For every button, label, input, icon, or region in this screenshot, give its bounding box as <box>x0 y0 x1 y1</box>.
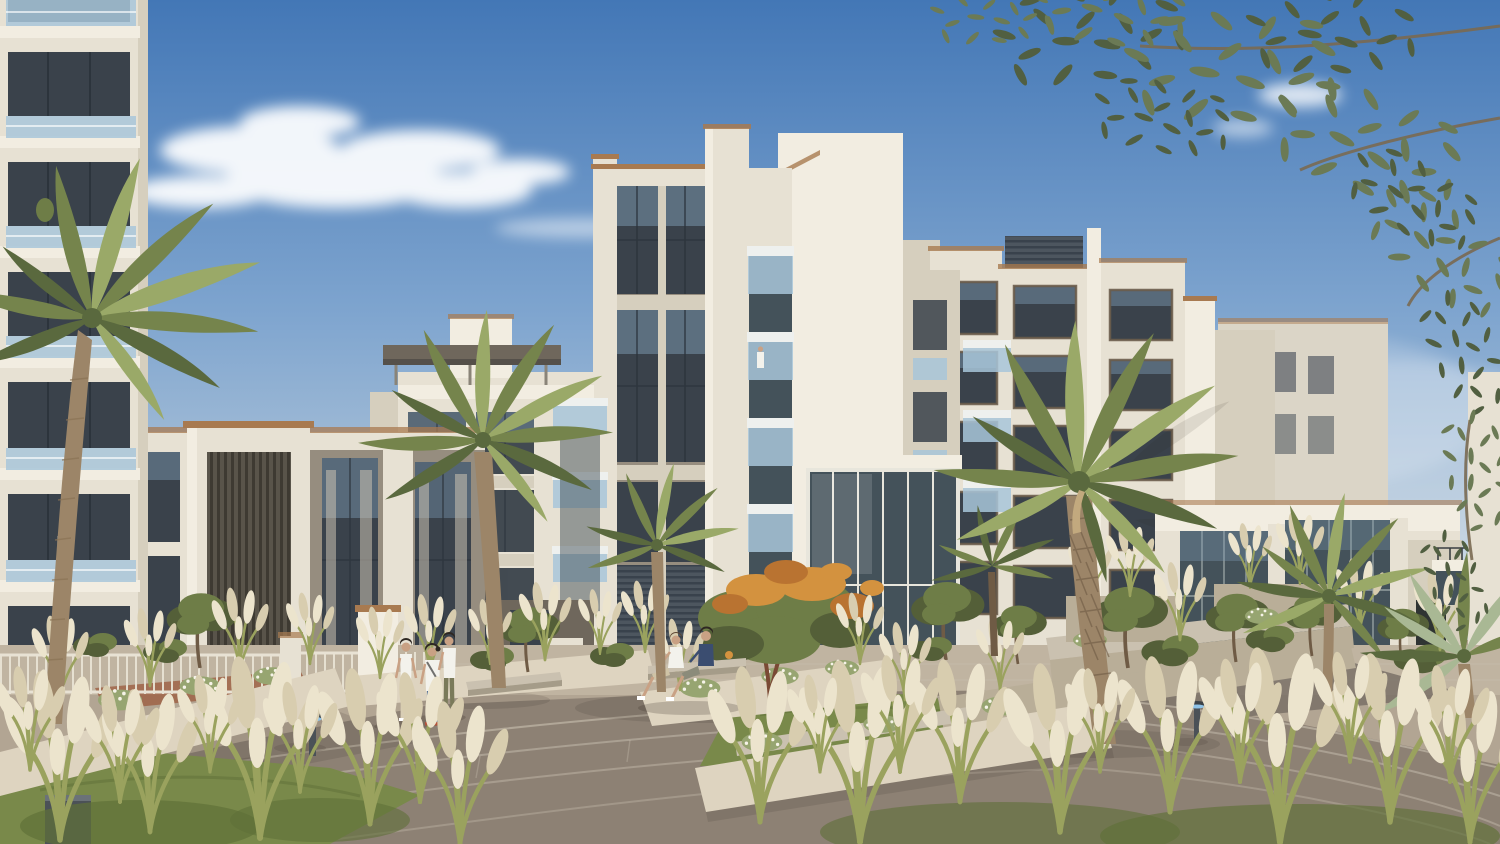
render-stage <box>0 0 1500 844</box>
bag-on-bench <box>725 651 733 659</box>
balcony-figure <box>757 346 764 368</box>
balcony-plant <box>36 198 54 222</box>
architectural-render <box>0 0 1500 844</box>
